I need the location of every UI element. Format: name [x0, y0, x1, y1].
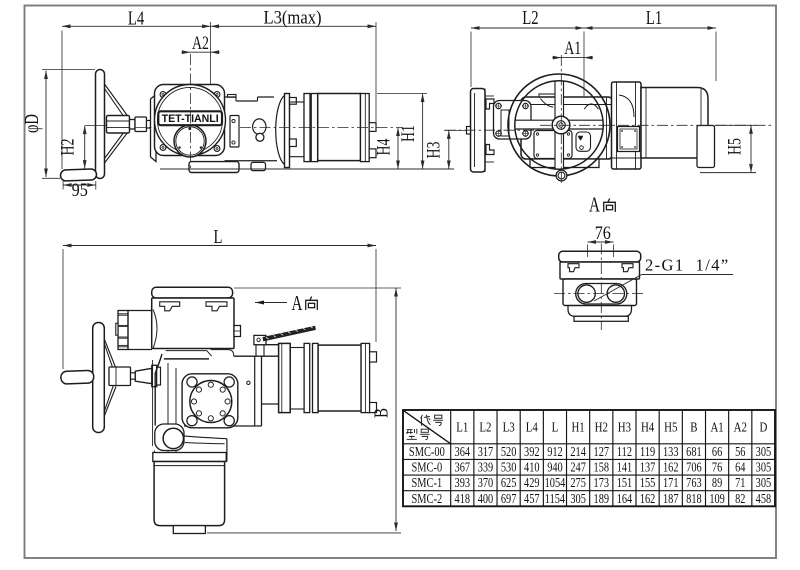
svg-text:L3: L3: [503, 419, 515, 435]
svg-text:305: 305: [756, 475, 771, 491]
svg-text:H2: H2: [56, 139, 78, 156]
svg-text:L: L: [214, 225, 223, 248]
svg-text:71: 71: [735, 475, 745, 491]
svg-text:SMC-00: SMC-00: [409, 444, 445, 460]
svg-text:429: 429: [524, 475, 539, 491]
svg-text:82: 82: [735, 490, 745, 506]
svg-text:339: 339: [478, 459, 493, 475]
svg-text:76: 76: [712, 459, 722, 475]
svg-text:214: 214: [570, 443, 585, 459]
svg-text:305: 305: [570, 490, 585, 506]
svg-text:1054: 1054: [545, 475, 566, 491]
svg-text:818: 818: [686, 490, 701, 506]
svg-text:2-G1 1/4”: 2-G1 1/4”: [645, 255, 730, 274]
svg-text:133: 133: [663, 443, 678, 459]
svg-text:940: 940: [547, 459, 562, 475]
svg-text:φD: φD: [20, 114, 43, 133]
svg-text:SMC-0: SMC-0: [412, 459, 443, 475]
svg-text:SMC-2: SMC-2: [412, 491, 443, 507]
svg-text:L1: L1: [456, 419, 468, 435]
svg-text:305: 305: [756, 443, 771, 459]
svg-text:137: 137: [640, 459, 655, 475]
svg-text:763: 763: [686, 475, 701, 491]
svg-text:162: 162: [663, 459, 678, 475]
svg-text:625: 625: [501, 475, 516, 491]
svg-text:1154: 1154: [545, 490, 565, 506]
svg-text:706: 706: [686, 459, 701, 475]
svg-text:H4: H4: [372, 138, 394, 156]
svg-text:95: 95: [72, 179, 88, 200]
svg-text:530: 530: [501, 459, 516, 475]
svg-text:76: 76: [595, 222, 611, 243]
svg-text:912: 912: [547, 443, 562, 459]
svg-text:127: 127: [594, 443, 609, 459]
svg-text:457: 457: [524, 490, 539, 506]
svg-text:155: 155: [640, 475, 655, 491]
svg-text:L3(max): L3(max): [263, 6, 321, 28]
svg-text:A2: A2: [192, 32, 209, 54]
svg-text:A: A: [292, 292, 303, 315]
svg-text:681: 681: [686, 443, 701, 459]
svg-text:697: 697: [501, 490, 516, 506]
svg-text:317: 317: [478, 443, 493, 459]
svg-text:171: 171: [663, 475, 678, 491]
svg-text:370: 370: [478, 475, 493, 491]
svg-text:247: 247: [570, 459, 585, 475]
svg-text:418: 418: [455, 490, 470, 506]
svg-text:B: B: [690, 419, 697, 435]
svg-text:393: 393: [455, 475, 470, 491]
svg-text:151: 151: [617, 475, 632, 491]
svg-text:H2: H2: [595, 419, 608, 435]
svg-text:H1: H1: [397, 125, 419, 142]
svg-text:367: 367: [455, 459, 470, 475]
svg-text:410: 410: [524, 459, 539, 475]
svg-text:305: 305: [756, 459, 771, 475]
svg-text:392: 392: [524, 443, 539, 459]
svg-text:H5: H5: [723, 138, 745, 155]
svg-text:400: 400: [478, 490, 493, 506]
svg-text:A1: A1: [564, 37, 581, 59]
svg-text:164: 164: [617, 490, 632, 506]
svg-text:109: 109: [709, 490, 724, 506]
svg-text:L: L: [552, 419, 559, 435]
svg-text:A: A: [589, 193, 600, 216]
svg-text:458: 458: [756, 490, 771, 506]
svg-text:275: 275: [570, 475, 585, 491]
svg-text:A1: A1: [710, 419, 723, 435]
svg-text:66: 66: [712, 443, 722, 459]
svg-text:SMC-1: SMC-1: [412, 475, 443, 491]
svg-text:D: D: [759, 419, 767, 435]
svg-text:162: 162: [640, 490, 655, 506]
svg-text:H4: H4: [641, 419, 655, 435]
svg-text:189: 189: [594, 490, 609, 506]
svg-text:112: 112: [617, 443, 632, 459]
svg-text:119: 119: [640, 443, 655, 459]
svg-text:H1: H1: [571, 419, 584, 435]
svg-text:64: 64: [735, 459, 745, 475]
svg-text:A2: A2: [734, 419, 747, 435]
svg-text:H5: H5: [664, 419, 677, 435]
svg-text:L4: L4: [526, 419, 539, 435]
svg-text:364: 364: [455, 443, 470, 459]
svg-text:H3: H3: [618, 419, 631, 435]
svg-text:158: 158: [594, 459, 609, 475]
svg-text:187: 187: [663, 490, 678, 506]
svg-text:89: 89: [712, 475, 722, 491]
svg-text:141: 141: [617, 459, 632, 475]
svg-text:B: B: [369, 408, 392, 418]
svg-text:520: 520: [501, 443, 516, 459]
svg-text:H3: H3: [422, 142, 444, 159]
svg-text:56: 56: [735, 443, 745, 459]
svg-text:L4: L4: [128, 6, 144, 29]
svg-text:L2: L2: [479, 419, 491, 435]
svg-text:L1: L1: [646, 6, 662, 29]
svg-text:L2: L2: [522, 6, 538, 29]
svg-text:173: 173: [594, 475, 609, 491]
